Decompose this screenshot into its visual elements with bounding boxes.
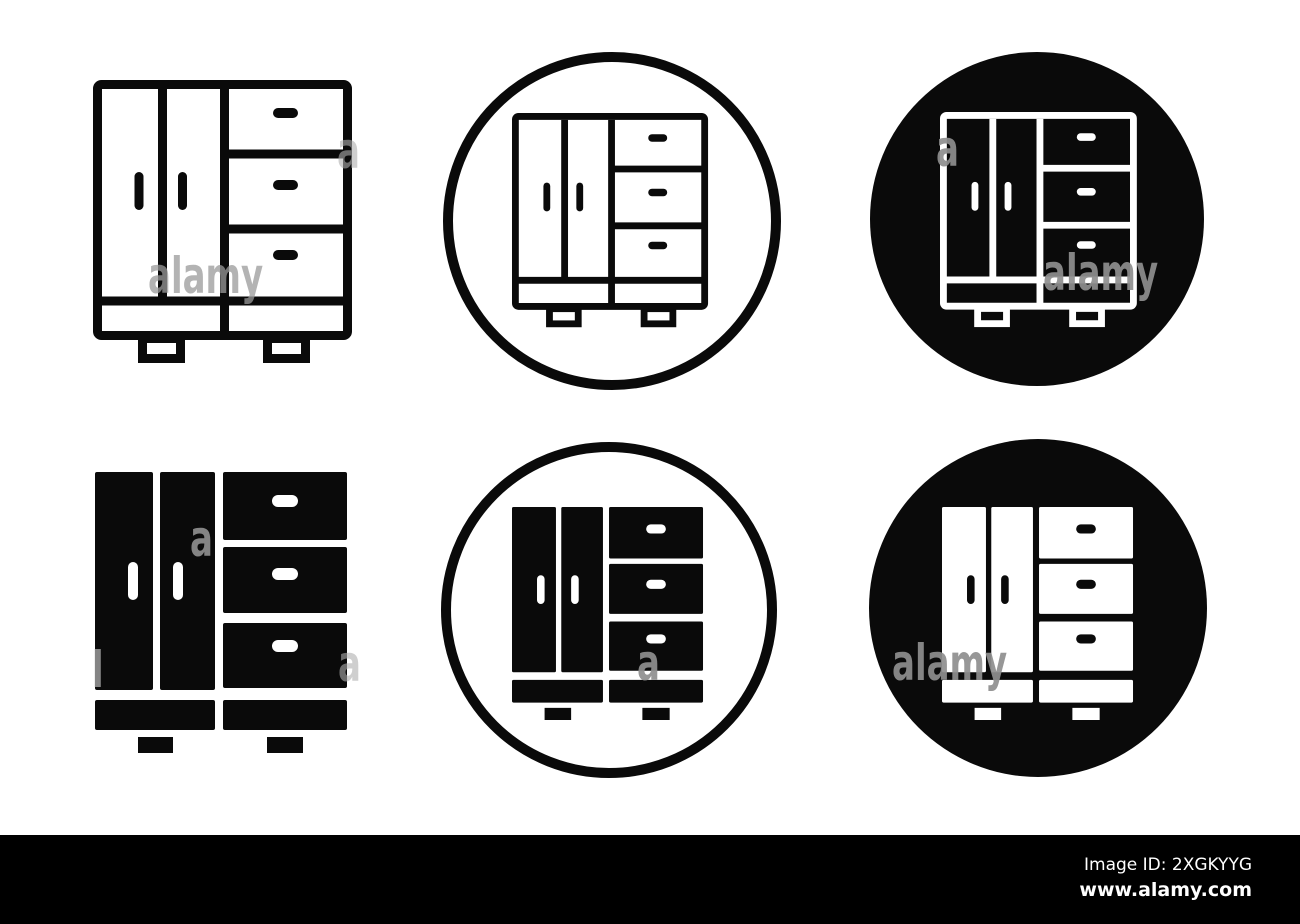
cupboard-outline-icon bbox=[98, 85, 348, 359]
black-circle-frame bbox=[869, 439, 1207, 777]
icon-set-sheet: alamy a a alamy a l a a alamy alamy Imag… bbox=[0, 0, 1300, 924]
footer-credit-block: Image ID: 2XGKYYG www.alamy.com bbox=[1079, 853, 1252, 902]
cupboard-solid-black-circle-icon bbox=[869, 439, 1207, 777]
cupboard-solid-icon bbox=[95, 472, 347, 753]
website-text: www.alamy.com bbox=[1079, 878, 1252, 903]
image-id-text: Image ID: 2XGKYYG bbox=[1079, 853, 1252, 878]
cupboard-outline-black-circle-icon bbox=[870, 52, 1204, 386]
cupboard-solid-circle-icon bbox=[446, 447, 772, 773]
icon-grid bbox=[0, 0, 1300, 835]
circle-outline-frame bbox=[446, 447, 772, 773]
cupboard-outline-circle-icon bbox=[448, 57, 776, 385]
